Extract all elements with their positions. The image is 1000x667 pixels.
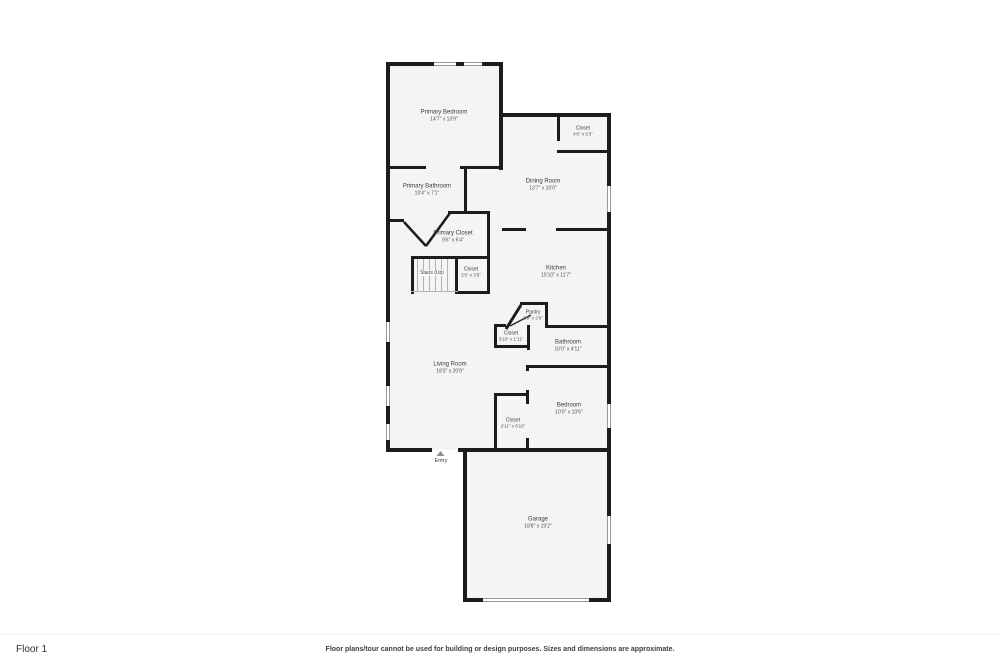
window-marker <box>483 598 589 602</box>
room-dims: 15'10" x 11'7" <box>541 273 571 279</box>
room-dims: 18'8" x 19'2" <box>524 524 551 530</box>
room-label-kitchen: Kitchen 15'10" x 11'7" <box>541 266 571 279</box>
room-label-primary-bathroom: Primary Bathroom 10'4" x 7'1" <box>403 184 451 197</box>
wall <box>499 113 611 117</box>
room-dims: 10'0" x 4'11" <box>554 347 581 353</box>
room-name: Primary Closet <box>433 231 472 238</box>
room-dims: 9'6" x 6'4" <box>433 238 472 244</box>
room-dims: 18'3" x 20'9" <box>433 369 466 375</box>
window-marker <box>386 322 390 342</box>
wall <box>386 342 390 386</box>
wall <box>386 448 432 452</box>
room-name: Garage <box>524 517 551 524</box>
footer: Floor 1 Floor plans/tour cannot be used … <box>0 634 1000 667</box>
room-label-closet-bedroom: Closet 2'11" x 6'10" <box>501 418 525 429</box>
window-marker <box>386 386 390 406</box>
room-label-bathroom: Bathroom 10'0" x 4'11" <box>554 340 581 353</box>
wall <box>556 228 610 231</box>
room-label-dining-room: Dining Room 13'7" x 10'0" <box>526 179 561 192</box>
room-label-stairs: Stairs (Up) <box>419 270 445 276</box>
room-fill <box>501 115 609 450</box>
room-dims: 2'6" x 3'5" <box>461 273 481 278</box>
room-name: Dining Room <box>526 179 561 186</box>
wall <box>526 390 529 404</box>
room-label-closet-top-right: Closet 4'6" x 5'3" <box>573 126 593 137</box>
wall <box>494 393 529 396</box>
wall <box>494 393 497 450</box>
room-dims: 10'0" x 10'6" <box>555 410 582 416</box>
window-marker <box>607 516 611 544</box>
wall <box>386 62 390 322</box>
room-label-primary-closet: Primary Closet 9'6" x 6'4" <box>433 231 472 244</box>
entry-arrow-icon <box>437 451 445 456</box>
wall <box>458 448 611 452</box>
wall <box>545 302 548 328</box>
wall <box>526 365 610 368</box>
room-label-living-room: Living Room 18'3" x 20'9" <box>433 362 466 375</box>
stair-tread <box>447 259 448 291</box>
wall <box>520 302 548 305</box>
wall <box>411 256 414 294</box>
room-name: Primary Bedroom <box>421 110 468 117</box>
wall <box>386 440 390 452</box>
wall <box>386 166 426 169</box>
wall <box>455 258 458 294</box>
wall <box>548 325 610 328</box>
wall <box>448 211 490 214</box>
wall <box>502 228 526 231</box>
floor-plan: Primary Bedroom 14'7" x 13'9" Closet 4'6… <box>0 0 1000 667</box>
wall <box>607 212 611 404</box>
room-label-garage: Garage 18'8" x 19'2" <box>524 517 551 530</box>
room-dims: 13'7" x 10'0" <box>526 186 561 192</box>
window-marker <box>607 404 611 428</box>
room-name: Bedroom <box>555 403 582 410</box>
wall <box>386 406 390 424</box>
wall <box>463 448 467 602</box>
entry-marker: Entry <box>435 451 448 464</box>
wall <box>607 428 611 516</box>
window-marker <box>434 62 456 66</box>
wall <box>460 166 503 169</box>
room-dims: 2'11" x 6'10" <box>501 424 525 429</box>
room-dims: 4'6" x 5'3" <box>573 132 593 137</box>
room-label-bedroom: Bedroom 10'0" x 10'6" <box>555 403 582 416</box>
wall <box>499 62 503 170</box>
wall <box>607 113 611 186</box>
floor-plan-page: Primary Bedroom 14'7" x 13'9" Closet 4'6… <box>0 0 1000 667</box>
room-name: Primary Bathroom <box>403 184 451 191</box>
stair-tread <box>417 259 418 291</box>
wall <box>456 62 464 66</box>
window-marker <box>386 424 390 440</box>
room-label-closet-hall: Closet 3'10" x 1'11" <box>499 331 523 342</box>
room-label-pantry: Pantry 2'9" x 2'6" <box>523 310 543 321</box>
room-dims: 2'9" x 2'6" <box>523 316 543 321</box>
room-label-closet-stairs: Closet 2'6" x 3'5" <box>461 267 481 278</box>
window-marker <box>464 62 482 66</box>
room-name: Kitchen <box>541 266 571 273</box>
wall <box>482 62 503 66</box>
disclaimer-text: Floor plans/tour cannot be used for buil… <box>0 646 1000 653</box>
wall <box>455 291 490 294</box>
room-name: Bathroom <box>554 340 581 347</box>
window-marker <box>607 186 611 212</box>
wall <box>557 117 560 141</box>
room-name: Stairs (Up) <box>420 270 444 276</box>
wall <box>494 345 530 348</box>
wall <box>607 544 611 602</box>
wall <box>526 438 529 450</box>
wall <box>464 166 467 213</box>
entry-label: Entry <box>435 458 448 464</box>
wall <box>494 326 497 348</box>
wall <box>386 62 434 66</box>
wall <box>487 211 490 259</box>
wall <box>487 256 490 294</box>
stair-tread <box>411 291 458 292</box>
room-label-primary-bedroom: Primary Bedroom 14'7" x 13'9" <box>421 110 468 123</box>
room-dims: 10'4" x 7'1" <box>403 191 451 197</box>
room-dims: 3'10" x 1'11" <box>499 337 523 342</box>
room-dims: 14'7" x 13'9" <box>421 117 468 123</box>
room-name: Living Room <box>433 362 466 369</box>
wall <box>557 150 610 153</box>
